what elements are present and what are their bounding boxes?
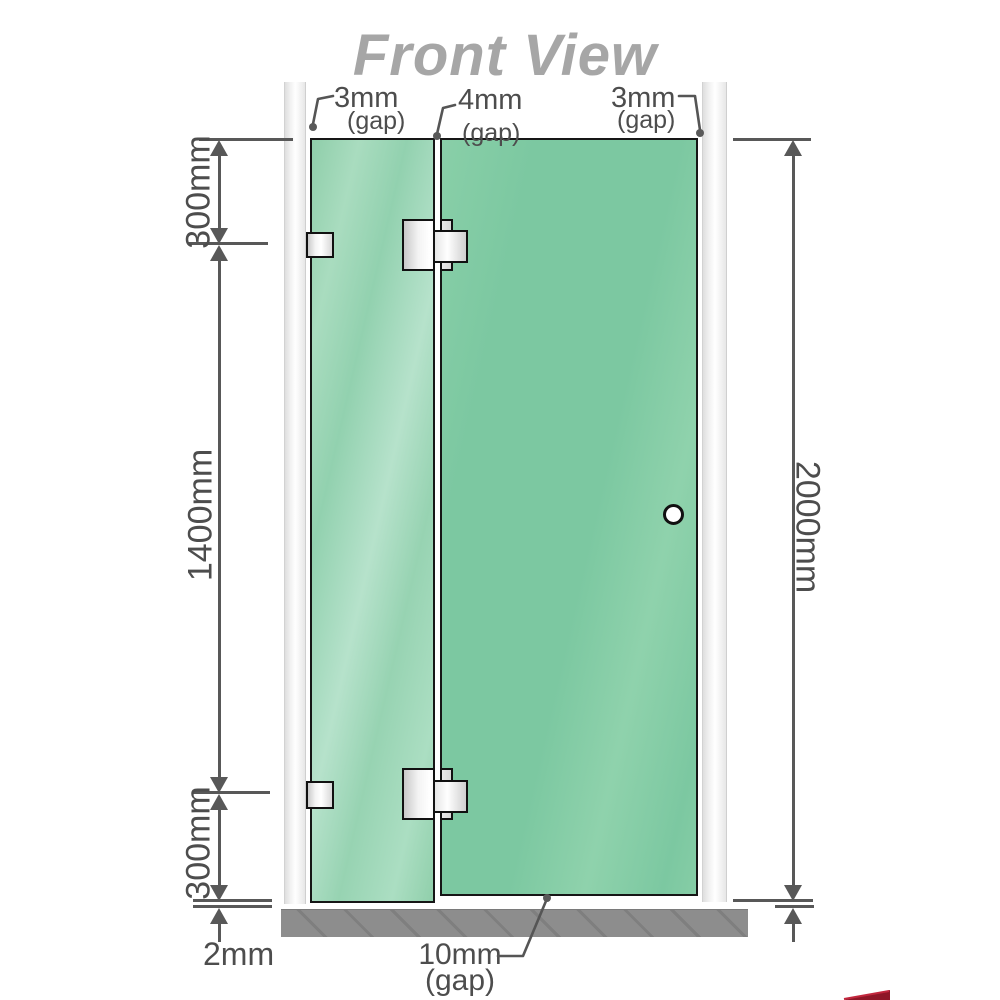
right-wall-channel [702,82,727,902]
gap-label-bottom-suffix: (gap) [410,964,510,998]
arrow-up-icon [210,908,228,924]
arrow-down-icon [784,885,802,901]
wall-bracket-bottom [306,781,334,809]
dimension-line [792,922,795,942]
dim-label-2000mm: 2000mm [788,461,827,593]
dimension-tick [193,905,272,908]
logo-fragment [844,990,890,1000]
hinge-bottom-plate-small [433,780,468,813]
dim-label-2mm: 2mm [203,936,274,973]
left-wall-channel [284,82,306,904]
gap-label-left-suffix: (gap) [347,107,405,136]
arrow-up-icon [784,140,802,156]
front-view-diagram: Front View 300mm 1400mm 300mm [0,0,1000,1000]
wall-bracket-top [306,232,334,258]
floor-bar [281,909,748,937]
door-handle-knob [663,504,684,525]
dim-label-lower-300mm: 300mm [180,786,219,899]
gap-label-center-4mm: 4mm [458,84,522,117]
gap-label-right-suffix: (gap) [617,106,675,135]
diagram-title: Front View [353,22,657,89]
arrow-up-icon [784,908,802,924]
dim-label-upper-300mm: 300mm [180,135,219,248]
dim-label-1400mm: 1400mm [182,449,221,581]
gap-label-center-suffix: (gap) [462,119,520,148]
hinge-top-plate-small [433,230,468,263]
door-glass-panel [440,138,698,896]
